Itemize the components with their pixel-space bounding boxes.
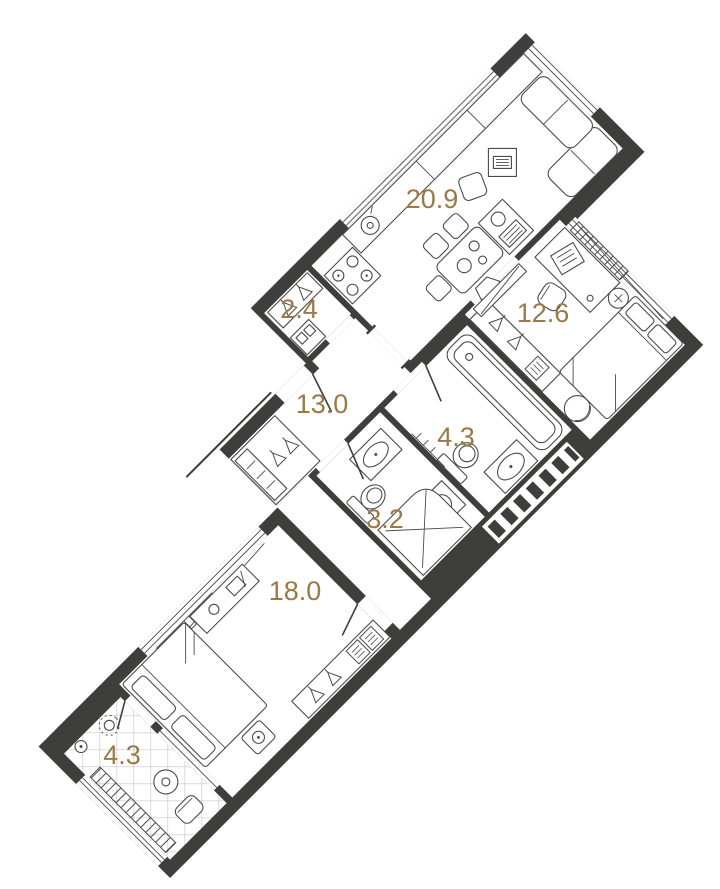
area-label-bedroom-2: 12.6: [517, 298, 570, 328]
area-label-kitchen-living: 20.9: [406, 184, 459, 214]
floorplan-canvas: 20.9 12.6 2.4 13.0 4.3 3.2 18.0 4.3: [0, 0, 720, 889]
area-label-shower-wc: 3.2: [366, 504, 404, 534]
area-label-bedroom-1: 18.0: [269, 576, 322, 606]
floor-plan: 20.9 12.6 2.4 13.0 4.3 3.2 18.0 4.3: [0, 0, 720, 889]
area-label-bathroom: 4.3: [437, 422, 475, 452]
area-label-loggia: 4.3: [103, 740, 141, 770]
area-label-corridor: 13.0: [296, 389, 349, 419]
area-label-entry-hall: 2.4: [280, 294, 318, 324]
tv-stand-icon: [488, 148, 516, 176]
